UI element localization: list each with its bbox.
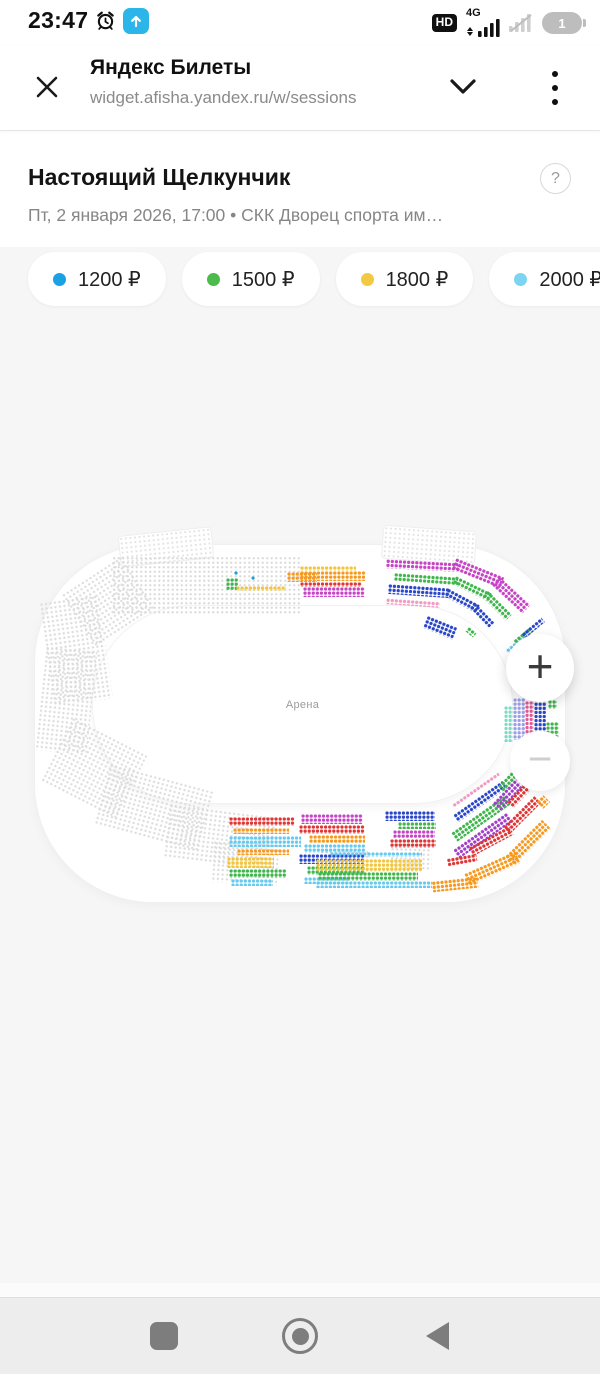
price-color-dot bbox=[53, 273, 66, 286]
browser-header: Яндекс Билеты widget.afisha.yandex.ru/w/… bbox=[0, 46, 600, 131]
price-chip-label: 2000 ₽ bbox=[539, 267, 600, 292]
seat-section-mag[interactable] bbox=[393, 830, 435, 838]
chevron-down-icon bbox=[446, 76, 480, 98]
seat-section-red[interactable] bbox=[390, 839, 436, 848]
price-color-dot bbox=[514, 273, 527, 286]
seat-section-cyn[interactable] bbox=[316, 881, 432, 888]
seat-section-tea[interactable] bbox=[504, 706, 513, 742]
seat-section-cyn[interactable] bbox=[231, 879, 273, 886]
page-title: Яндекс Билеты bbox=[90, 56, 251, 80]
zoom-in-button[interactable]: + bbox=[506, 634, 574, 702]
menu-button[interactable] bbox=[543, 64, 567, 112]
seat-section-blu[interactable] bbox=[234, 571, 238, 575]
seat-map[interactable]: Арена bbox=[0, 0, 600, 1373]
seat-section-grn[interactable] bbox=[548, 700, 557, 709]
seat-section-org[interactable] bbox=[309, 835, 365, 843]
seat-section-grn[interactable] bbox=[398, 822, 436, 829]
price-chip[interactable]: 2000 ₽ bbox=[489, 252, 600, 306]
price-chip[interactable]: 1800 ₽ bbox=[336, 252, 474, 306]
zoom-out-button[interactable]: − bbox=[510, 731, 570, 791]
price-chip[interactable]: 1200 ₽ bbox=[28, 252, 166, 306]
price-color-dot bbox=[207, 273, 220, 286]
seat-section-blu[interactable] bbox=[251, 576, 255, 580]
seat-section-cyn[interactable] bbox=[330, 852, 422, 857]
minus-icon: − bbox=[528, 738, 553, 780]
seat-section-red[interactable] bbox=[229, 817, 295, 826]
seat-section-mag[interactable] bbox=[301, 814, 363, 824]
seat-section-yel[interactable] bbox=[277, 586, 286, 591]
seat-section-grn[interactable] bbox=[229, 869, 286, 878]
seat-section-yel[interactable] bbox=[236, 586, 278, 591]
price-color-dot bbox=[361, 273, 374, 286]
price-chip-label: 1800 ₽ bbox=[386, 267, 449, 292]
seat-section-yel[interactable] bbox=[316, 859, 422, 872]
seat-section-dpk[interactable] bbox=[525, 701, 534, 735]
seat-section-cyn[interactable] bbox=[229, 836, 301, 847]
seat-section-nvy[interactable] bbox=[385, 811, 435, 821]
price-legend: 1200 ₽1500 ₽1800 ₽2000 ₽ bbox=[28, 252, 600, 306]
stand-panel bbox=[382, 526, 476, 564]
seat-section-grn[interactable] bbox=[318, 872, 418, 881]
seat-section-mag[interactable] bbox=[303, 587, 365, 597]
seat-section-red[interactable] bbox=[299, 825, 365, 834]
close-icon bbox=[34, 74, 60, 100]
plus-icon: + bbox=[527, 643, 554, 689]
expand-button[interactable] bbox=[444, 72, 482, 102]
price-chip-label: 1200 ₽ bbox=[78, 267, 141, 292]
seat-section-org[interactable] bbox=[233, 828, 289, 834]
seat-section-yel[interactable] bbox=[227, 857, 274, 868]
arena-label: Арена bbox=[286, 699, 319, 711]
page-url: widget.afisha.yandex.ru/w/sessions bbox=[90, 88, 428, 108]
price-chip[interactable]: 1500 ₽ bbox=[182, 252, 320, 306]
price-chip-label: 1500 ₽ bbox=[232, 267, 295, 292]
seat-section-org[interactable] bbox=[300, 571, 366, 581]
seat-section-lav[interactable] bbox=[513, 698, 525, 740]
seat-section-org[interactable] bbox=[237, 849, 289, 855]
close-button[interactable] bbox=[30, 70, 64, 104]
